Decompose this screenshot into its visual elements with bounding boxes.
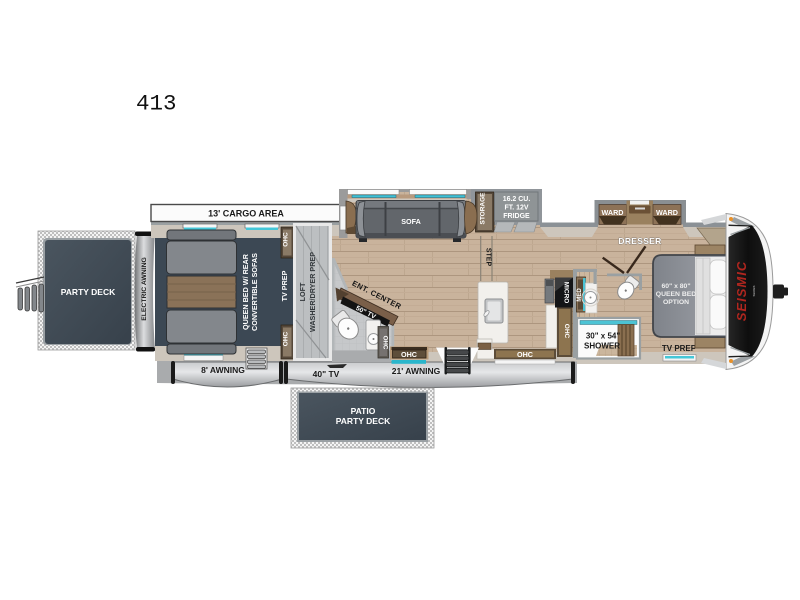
svg-text:OPTION: OPTION <box>663 299 689 306</box>
svg-text:PARTY DECK: PARTY DECK <box>61 287 116 297</box>
svg-text:TV PREP: TV PREP <box>662 344 697 353</box>
svg-text:OHC: OHC <box>382 336 389 350</box>
svg-text:SOFA: SOFA <box>401 217 421 226</box>
svg-text:STORAGE: STORAGE <box>480 192 487 225</box>
svg-text:WARD: WARD <box>602 208 624 217</box>
svg-text:FRIDGE: FRIDGE <box>503 213 530 220</box>
svg-text:8' AWNING: 8' AWNING <box>201 365 245 375</box>
svg-text:STEP: STEP <box>485 248 492 267</box>
svg-text:LOFT: LOFT <box>298 282 307 301</box>
svg-text:13' CARGO AREA: 13' CARGO AREA <box>208 209 284 219</box>
svg-text:QUEEN BED W/ REAR: QUEEN BED W/ REAR <box>241 253 250 330</box>
svg-text:16.2 CU.: 16.2 CU. <box>503 196 531 203</box>
svg-text:SEISMIC: SEISMIC <box>734 261 749 321</box>
svg-text:DRESSER: DRESSER <box>618 236 661 246</box>
svg-text:OHC: OHC <box>283 232 290 247</box>
svg-text:60" x 80": 60" x 80" <box>661 283 690 290</box>
svg-text:30" x 54": 30" x 54" <box>586 332 620 341</box>
svg-text:OHC: OHC <box>401 350 417 359</box>
svg-text:QUEEN BED: QUEEN BED <box>656 291 697 298</box>
svg-text:21' AWNING: 21' AWNING <box>392 366 441 376</box>
svg-text:MICRO: MICRO <box>563 282 570 304</box>
svg-text:OHC: OHC <box>517 350 533 359</box>
svg-text:FT. 12V: FT. 12V <box>504 205 528 212</box>
svg-text:40" TV: 40" TV <box>313 369 340 379</box>
svg-text:OHC: OHC <box>563 324 570 339</box>
svg-text:OHC: OHC <box>283 331 290 346</box>
svg-text:PATIO: PATIO <box>351 406 376 416</box>
svg-text:SHOWER: SHOWER <box>584 342 620 351</box>
svg-text:SERIES: SERIES <box>752 285 756 296</box>
svg-text:413: 413 <box>136 91 177 117</box>
svg-text:CONVERTIBLE SOFAS: CONVERTIBLE SOFAS <box>250 253 259 331</box>
svg-text:WASHER/DRYER PREP: WASHER/DRYER PREP <box>308 252 317 332</box>
svg-text:TV PREP: TV PREP <box>280 270 289 301</box>
svg-text:ELECTRIC AWNING: ELECTRIC AWNING <box>141 257 148 321</box>
svg-text:WARD: WARD <box>656 208 678 217</box>
svg-text:PARTY DECK: PARTY DECK <box>336 416 391 426</box>
